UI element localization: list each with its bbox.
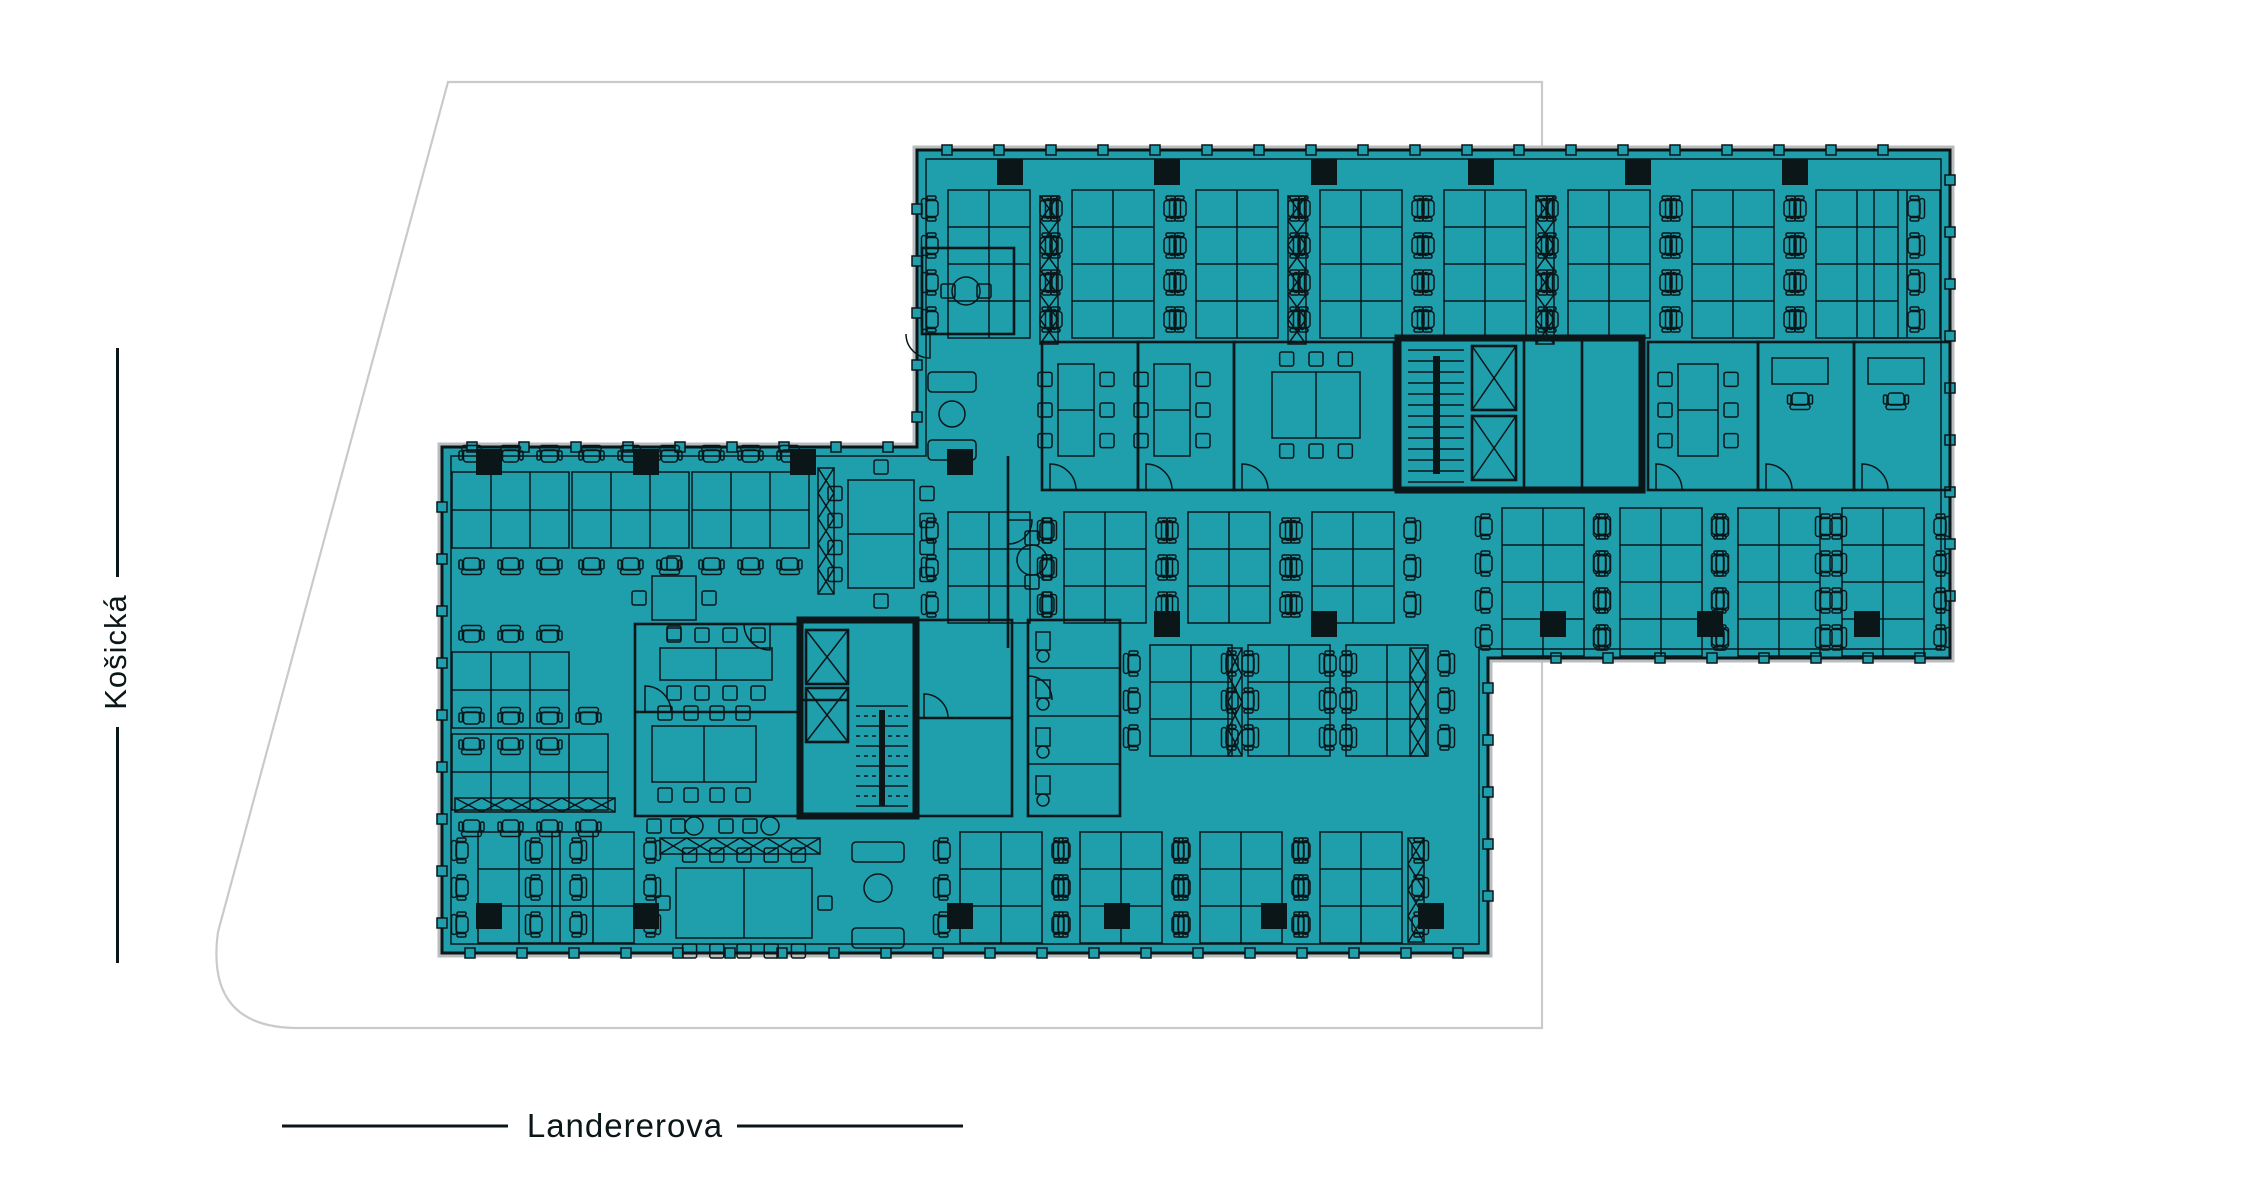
street-label-kosicka: Košická bbox=[98, 348, 133, 963]
street-label-landererova: Landererova bbox=[282, 1107, 963, 1144]
floor-plan-page: Košická Landererova bbox=[0, 0, 2256, 1200]
floor-plan-canvas: Košická Landererova bbox=[0, 0, 2256, 1200]
street-name-landererova: Landererova bbox=[527, 1107, 723, 1144]
street-name-kosicka: Košická bbox=[98, 594, 133, 710]
